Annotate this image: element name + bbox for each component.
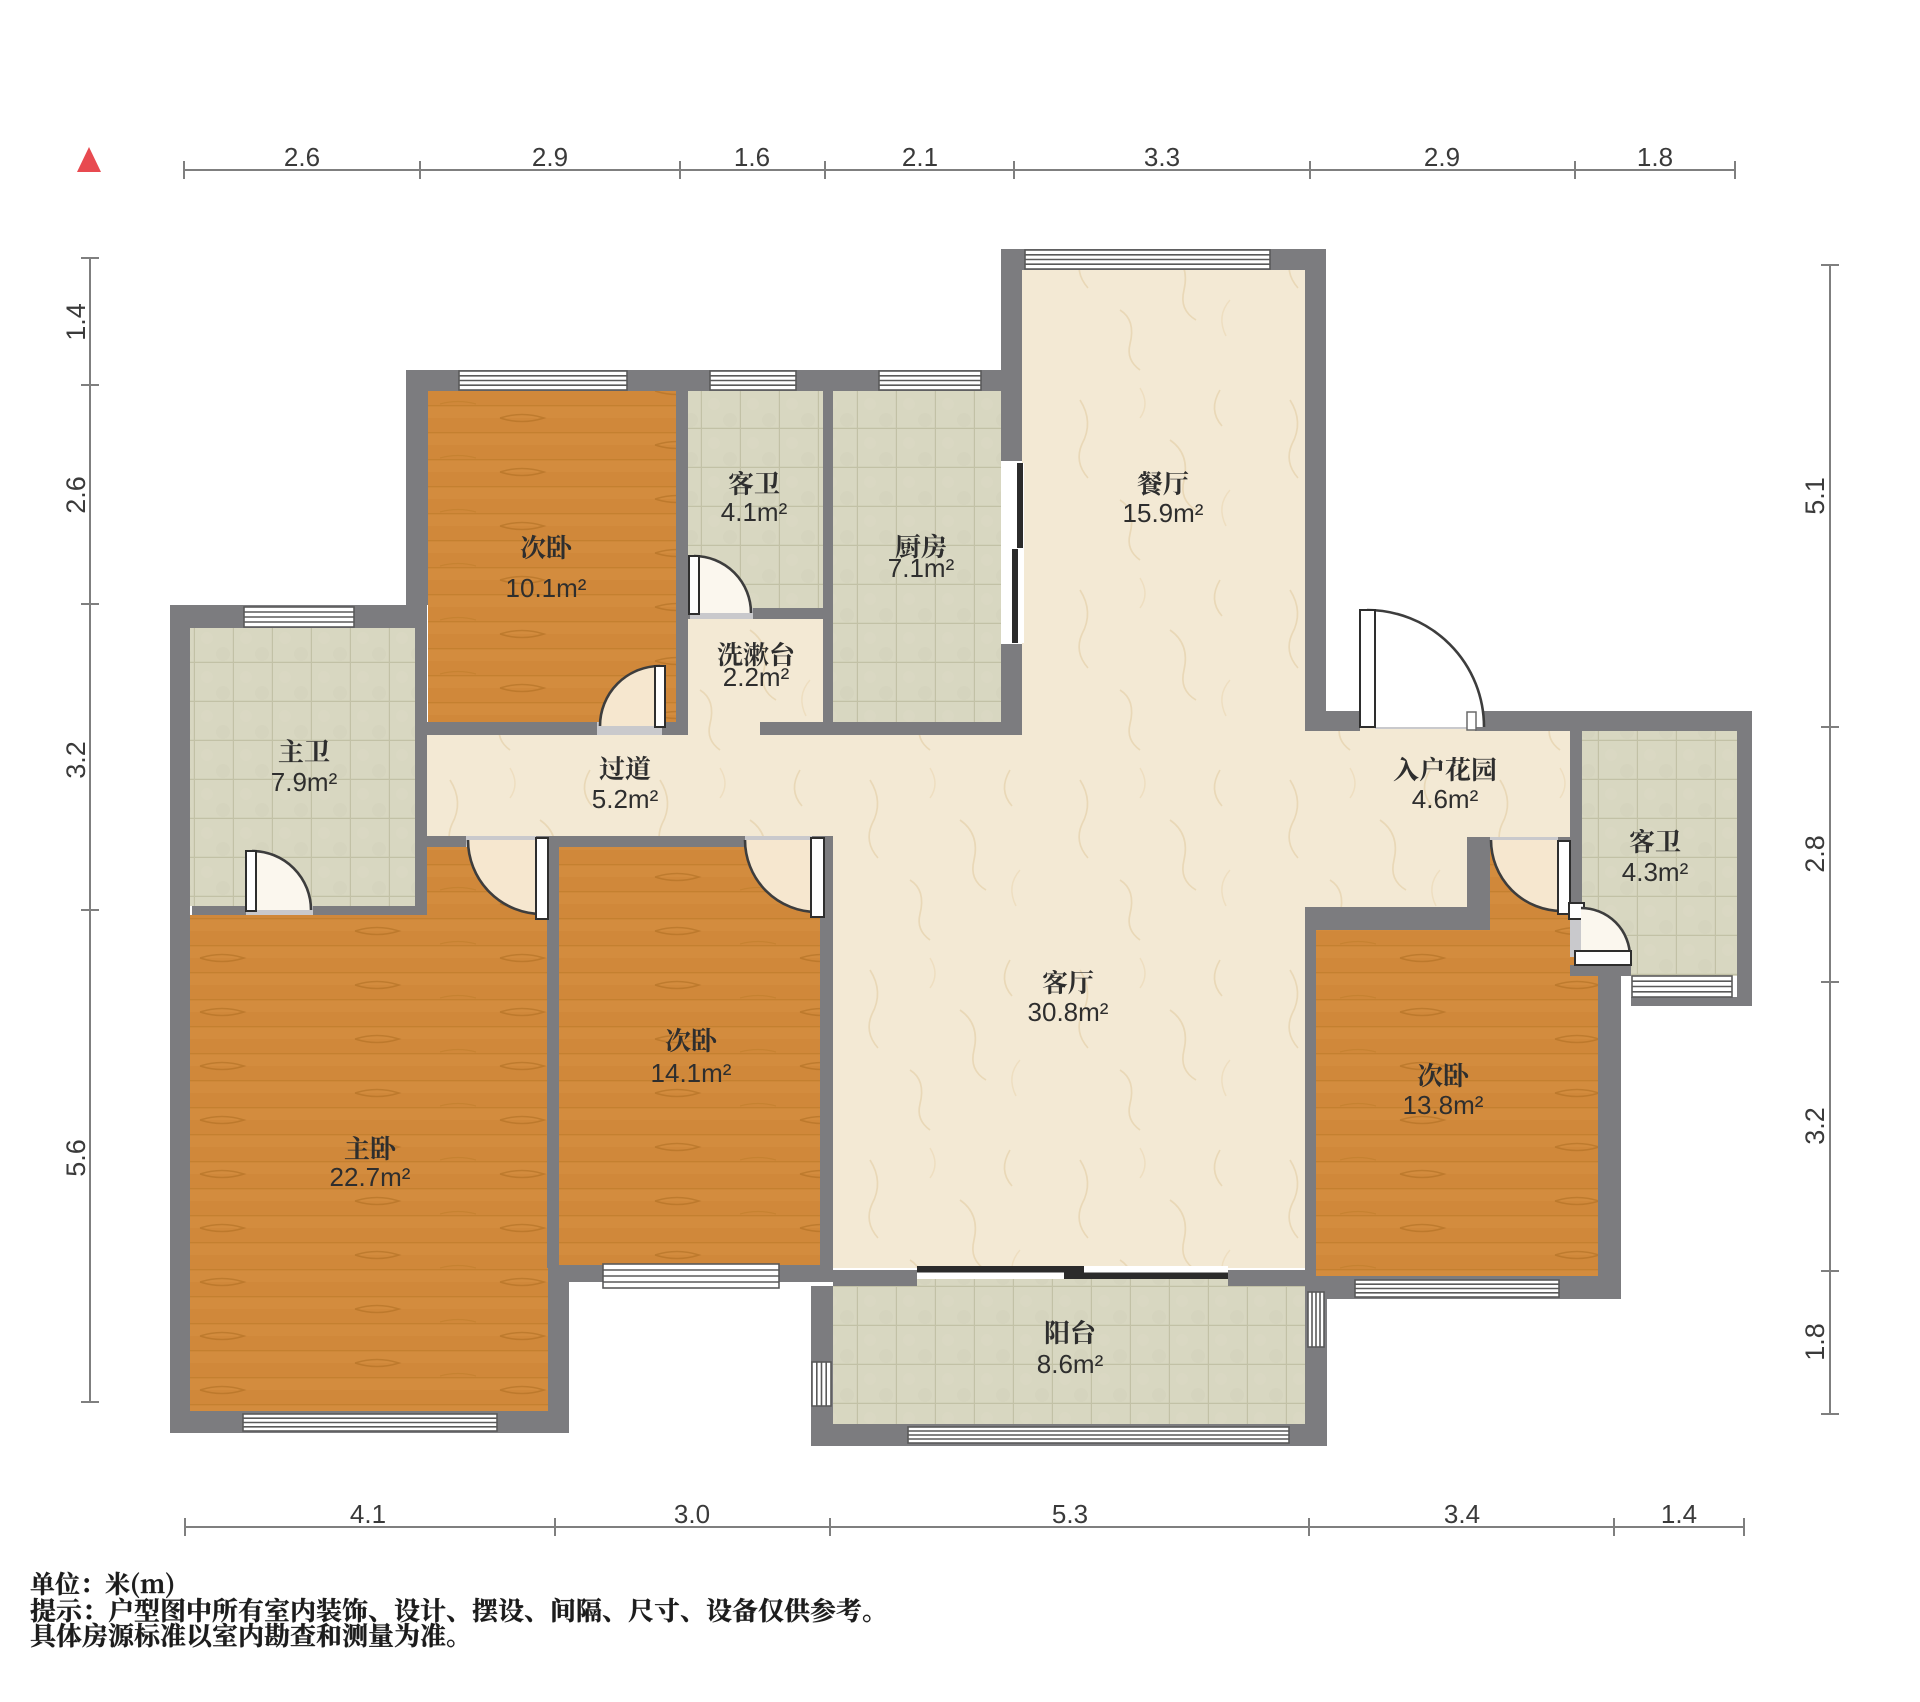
svg-text:13.8m²: 13.8m² bbox=[1403, 1090, 1484, 1120]
svg-text:1.8: 1.8 bbox=[1637, 142, 1673, 172]
svg-text:8.6m²: 8.6m² bbox=[1037, 1349, 1104, 1379]
svg-text:3.4: 3.4 bbox=[1444, 1499, 1480, 1529]
svg-text:2.6: 2.6 bbox=[61, 476, 91, 514]
svg-text:3.2: 3.2 bbox=[61, 741, 91, 779]
svg-text:4.1m²: 4.1m² bbox=[721, 497, 788, 527]
svg-text:10.1m²: 10.1m² bbox=[506, 573, 587, 603]
svg-text:2.8: 2.8 bbox=[1800, 835, 1830, 873]
svg-text:2.1: 2.1 bbox=[902, 142, 938, 172]
svg-text:3.0: 3.0 bbox=[674, 1499, 710, 1529]
svg-text:3.3: 3.3 bbox=[1144, 142, 1180, 172]
svg-text:1.4: 1.4 bbox=[61, 303, 91, 341]
svg-text:5.1: 5.1 bbox=[1800, 477, 1830, 515]
svg-text:5.6: 5.6 bbox=[61, 1139, 91, 1177]
svg-text:4.6m²: 4.6m² bbox=[1412, 784, 1479, 814]
svg-text:30.8m²: 30.8m² bbox=[1028, 997, 1109, 1027]
svg-text:5.2m²: 5.2m² bbox=[592, 784, 659, 814]
svg-text:1.4: 1.4 bbox=[1661, 1499, 1697, 1529]
svg-text:1.6: 1.6 bbox=[734, 142, 770, 172]
svg-text:7.1m²: 7.1m² bbox=[888, 553, 955, 583]
svg-text:22.7m²: 22.7m² bbox=[330, 1162, 411, 1192]
svg-text:4.1: 4.1 bbox=[350, 1499, 386, 1529]
svg-text:2.9: 2.9 bbox=[532, 142, 568, 172]
svg-text:5.3: 5.3 bbox=[1052, 1499, 1088, 1529]
svg-text:2.6: 2.6 bbox=[284, 142, 320, 172]
svg-text:4.3m²: 4.3m² bbox=[1622, 857, 1689, 887]
svg-text:2.9: 2.9 bbox=[1424, 142, 1460, 172]
svg-text:14.1m²: 14.1m² bbox=[651, 1058, 732, 1088]
svg-text:1.8: 1.8 bbox=[1800, 1323, 1830, 1361]
svg-text:2.2m²: 2.2m² bbox=[723, 662, 790, 692]
svg-text:15.9m²: 15.9m² bbox=[1123, 498, 1204, 528]
svg-text:7.9m²: 7.9m² bbox=[271, 767, 338, 797]
svg-text:3.2: 3.2 bbox=[1800, 1107, 1830, 1145]
